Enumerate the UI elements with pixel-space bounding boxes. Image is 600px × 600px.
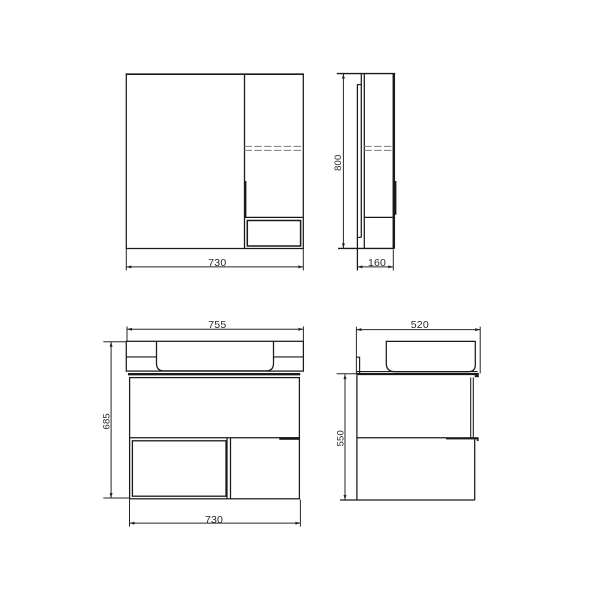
svg-text:550: 550 [335,430,346,446]
svg-text:755: 755 [208,319,226,331]
svg-text:160: 160 [368,257,386,269]
svg-text:730: 730 [205,514,223,526]
svg-text:685: 685 [102,413,113,429]
svg-text:800: 800 [333,154,344,170]
svg-text:730: 730 [208,257,226,269]
svg-text:520: 520 [411,319,429,331]
